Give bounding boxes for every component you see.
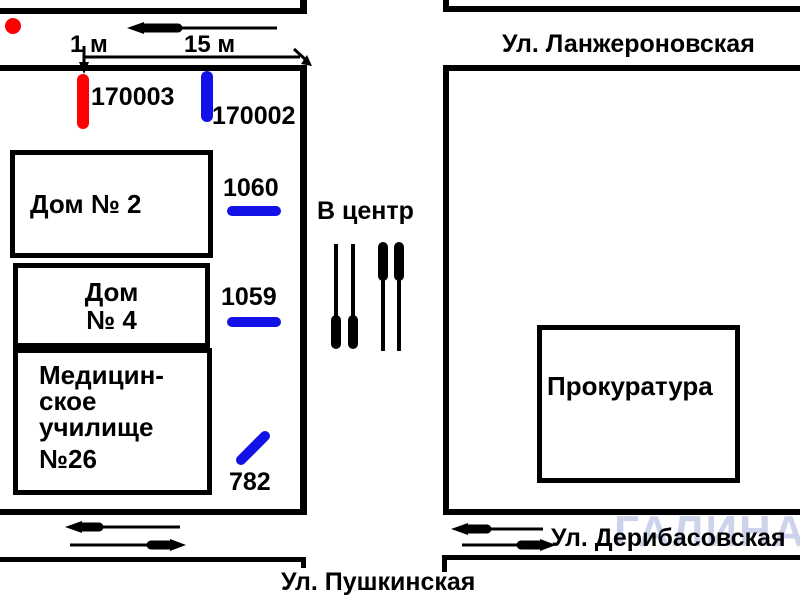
street-label-lanzheronovskaya: Ул. Ланжероновская bbox=[502, 30, 755, 59]
building-dom-4-label-line1: Дом bbox=[85, 278, 139, 306]
stop-1060-bar bbox=[227, 206, 281, 216]
pole-170003-label: 170003 bbox=[91, 83, 174, 112]
scale-label-15m: 15 м bbox=[184, 31, 235, 59]
building-prokuratura-label: Прокуратура bbox=[547, 371, 713, 401]
building-dom-4-label-line2: № 4 bbox=[86, 306, 137, 334]
building-dom-2: Дом № 2 bbox=[10, 150, 213, 258]
building-dom-4: Дом № 4 bbox=[13, 263, 210, 348]
pole-170003-marker bbox=[77, 74, 89, 129]
building-med-school: Медицин- ское училище №26 bbox=[13, 348, 212, 495]
building-med-school-label-line4: №26 bbox=[39, 446, 207, 472]
street-label-deribasovskaya: Ул. Дерибасовская bbox=[551, 524, 786, 553]
crosswalk-arrows-left bbox=[65, 521, 186, 551]
red-dot-marker bbox=[5, 18, 21, 34]
top-right-street-edge bbox=[443, 6, 800, 12]
building-prokuratura: Прокуратура bbox=[537, 325, 740, 483]
pole-170002-label: 170002 bbox=[212, 102, 295, 131]
bottom-left-street-edge bbox=[0, 557, 306, 562]
top-left-street-edge bbox=[0, 8, 307, 14]
street-map: ГАЛИНА Дом № 2 Дом № 4 Медицин- ское учи… bbox=[0, 0, 800, 600]
building-med-school-label-line2: ское bbox=[39, 388, 207, 414]
tram-direction-marks bbox=[336, 244, 399, 351]
building-med-school-label-line1: Медицин- bbox=[39, 362, 207, 388]
stop-782-label: 782 bbox=[229, 468, 271, 497]
bottom-left-street-edge-corner bbox=[301, 560, 306, 568]
street-label-pushkinskaya: Ул. Пушкинская bbox=[281, 568, 475, 597]
stop-1060-label: 1060 bbox=[223, 174, 279, 203]
stop-1059-bar bbox=[227, 317, 281, 327]
building-med-school-label-line3: училище bbox=[39, 414, 207, 440]
top-left-street-edge-corner bbox=[300, 0, 307, 14]
crosswalk-arrows-right bbox=[451, 523, 556, 551]
building-dom-2-label: Дом № 2 bbox=[30, 190, 142, 218]
direction-to-center-label: В центр bbox=[317, 197, 414, 226]
top-right-street-edge-corner bbox=[443, 0, 449, 12]
stop-1059-label: 1059 bbox=[221, 283, 277, 312]
scale-label-1m: 1 м bbox=[70, 31, 108, 59]
